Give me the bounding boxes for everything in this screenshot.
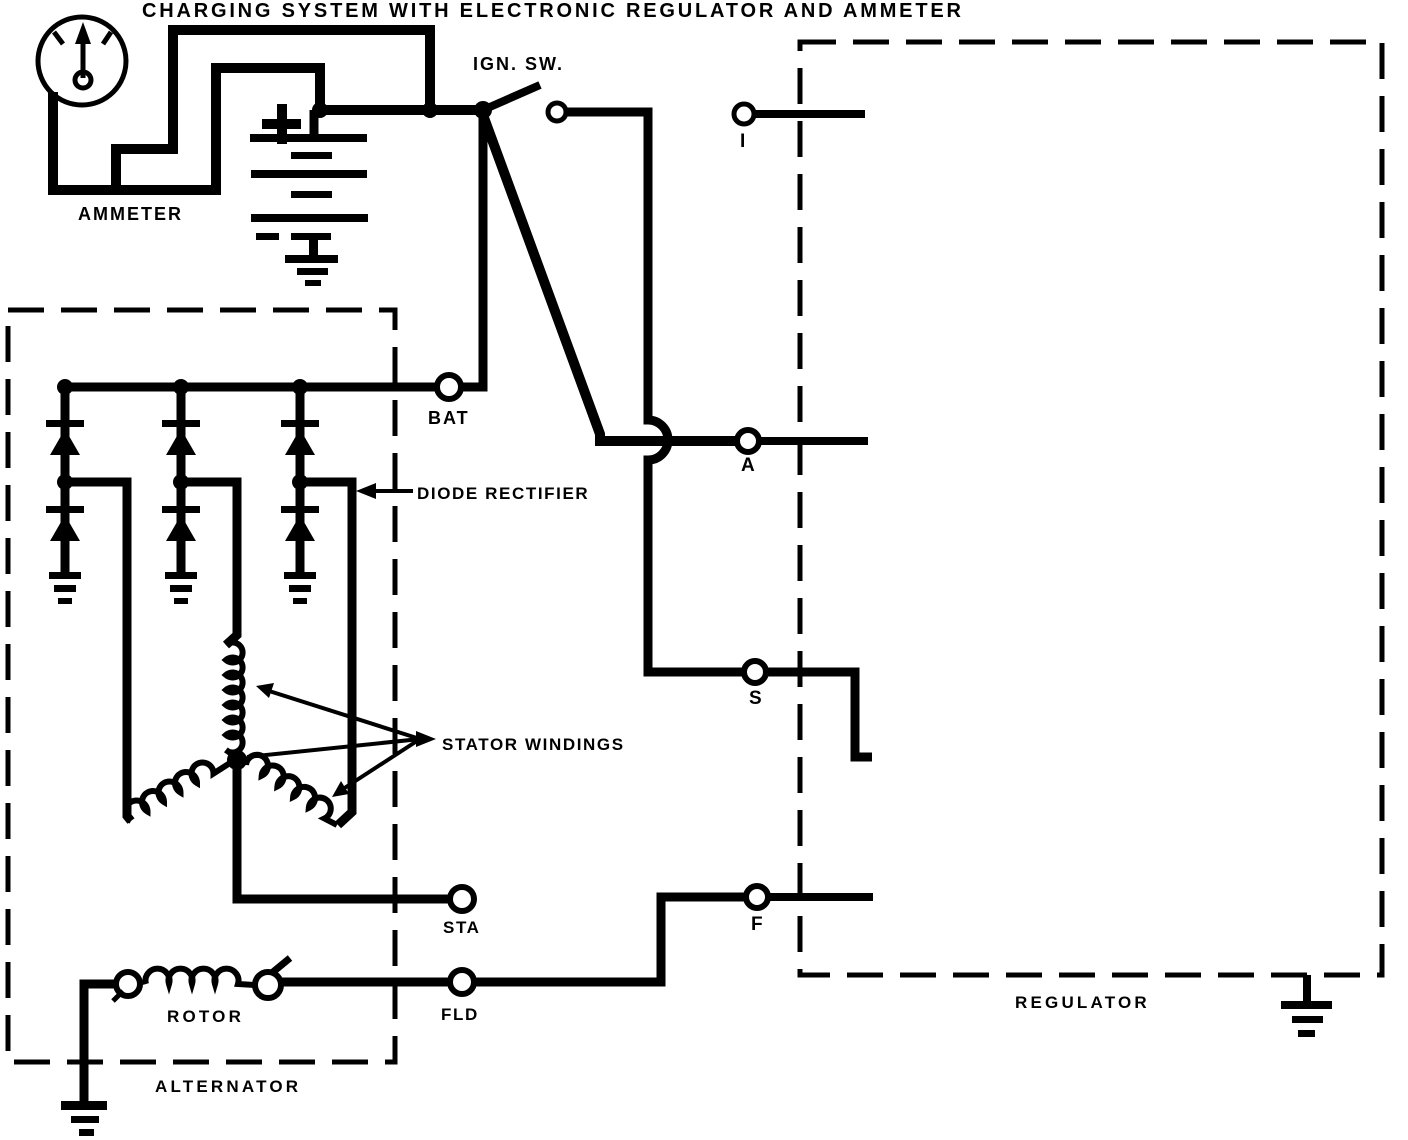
diode-icon bbox=[281, 420, 319, 427]
wire-bat-to-switch bbox=[461, 110, 483, 387]
diode-icon bbox=[162, 506, 200, 513]
battery-plate-short bbox=[291, 152, 332, 159]
ammeter-needle-pivot bbox=[75, 72, 91, 88]
ammeter-needle-arrowhead bbox=[75, 22, 91, 44]
junction-dot bbox=[292, 379, 308, 395]
ign-sw-label: IGN. SW. bbox=[473, 54, 564, 74]
terminal-a bbox=[737, 430, 759, 452]
stator-coil-right bbox=[246, 755, 337, 825]
brush-left bbox=[113, 991, 123, 1001]
terminal-f bbox=[746, 886, 768, 908]
junction-dot bbox=[422, 102, 438, 118]
battery-plate-long bbox=[251, 170, 367, 178]
a-label: A bbox=[741, 455, 756, 476]
junction-dot bbox=[173, 379, 189, 395]
i-label: I bbox=[740, 131, 746, 152]
battery-plate-long bbox=[250, 134, 367, 142]
bat-label: BAT bbox=[428, 408, 470, 428]
regulator-ground bbox=[1281, 975, 1332, 1037]
switch-lever bbox=[483, 85, 540, 110]
charging-system-diagram: CHARGING SYSTEM WITH ELECTRONIC REGULATO… bbox=[0, 0, 1408, 1140]
ground-icon bbox=[285, 255, 338, 286]
ammeter-tick-right bbox=[103, 32, 111, 44]
wire-fld-to-f bbox=[474, 897, 746, 982]
ground-icon bbox=[284, 572, 316, 604]
arrow-right-icon bbox=[416, 731, 436, 747]
ground-icon bbox=[61, 1101, 107, 1136]
rotor bbox=[61, 958, 290, 1136]
terminal-bat bbox=[437, 375, 461, 399]
terminal-s bbox=[744, 661, 766, 683]
stator-coil-left bbox=[126, 762, 230, 821]
diode-icon bbox=[166, 515, 196, 541]
diode-icon bbox=[281, 506, 319, 513]
ammeter-tick-left bbox=[54, 32, 63, 44]
fld-label: FLD bbox=[441, 1005, 479, 1024]
brush-right bbox=[273, 958, 290, 972]
terminal-sta bbox=[450, 887, 474, 911]
battery-plate-long bbox=[251, 214, 368, 222]
stator-windings-label: STATOR WINDINGS bbox=[442, 735, 625, 754]
rotor-coil bbox=[146, 969, 255, 985]
page-title: CHARGING SYSTEM WITH ELECTRONIC REGULATO… bbox=[142, 0, 964, 22]
wire-s-stub bbox=[766, 672, 872, 757]
junction-dot bbox=[57, 379, 73, 395]
regulator-box bbox=[800, 42, 1382, 975]
ground-icon bbox=[165, 572, 197, 604]
slip-ring-right bbox=[255, 972, 281, 998]
diode-icon bbox=[166, 429, 196, 455]
ammeter-label: AMMETER bbox=[78, 204, 183, 224]
wire-rotor-to-ground bbox=[84, 984, 116, 1103]
diode-icon bbox=[285, 515, 315, 541]
sta-label: STA bbox=[443, 918, 481, 937]
regulator-label: REGULATOR bbox=[1015, 993, 1150, 1012]
battery-ground-stub bbox=[309, 236, 318, 258]
arrow-upleft-icon bbox=[256, 683, 274, 698]
terminal-i bbox=[734, 104, 754, 124]
schematic-page: CHARGING SYSTEM WITH ELECTRONIC REGULATO… bbox=[0, 0, 1408, 1140]
ground-icon bbox=[1281, 1001, 1332, 1037]
ammeter-gauge bbox=[38, 17, 126, 105]
arrow-left-icon bbox=[356, 483, 376, 499]
f-label: F bbox=[751, 914, 764, 935]
diode-icon bbox=[46, 506, 84, 513]
ground-icon bbox=[49, 572, 81, 604]
wire-switch-to-a bbox=[483, 115, 737, 441]
diode-icon bbox=[162, 420, 200, 427]
diode-icon bbox=[50, 515, 80, 541]
stator-leader-arrows bbox=[247, 683, 436, 797]
diode-icon bbox=[46, 420, 84, 427]
wire-switch-to-s bbox=[566, 112, 744, 672]
diode-icon bbox=[285, 429, 315, 455]
diode-icon bbox=[50, 429, 80, 455]
switch-contact bbox=[548, 103, 566, 121]
battery-symbol bbox=[250, 104, 368, 286]
battery-plate-short bbox=[256, 233, 279, 240]
alternator-label: ALTERNATOR bbox=[155, 1077, 301, 1096]
battery-plate-short bbox=[291, 191, 332, 198]
stator-windings bbox=[126, 643, 337, 826]
rotor-label: ROTOR bbox=[167, 1007, 244, 1026]
stator-coil-middle bbox=[226, 643, 243, 758]
terminal-fld bbox=[450, 970, 474, 994]
s-label: S bbox=[749, 688, 763, 709]
diode-rectifier-label: DIODE RECTIFIER bbox=[417, 484, 589, 503]
